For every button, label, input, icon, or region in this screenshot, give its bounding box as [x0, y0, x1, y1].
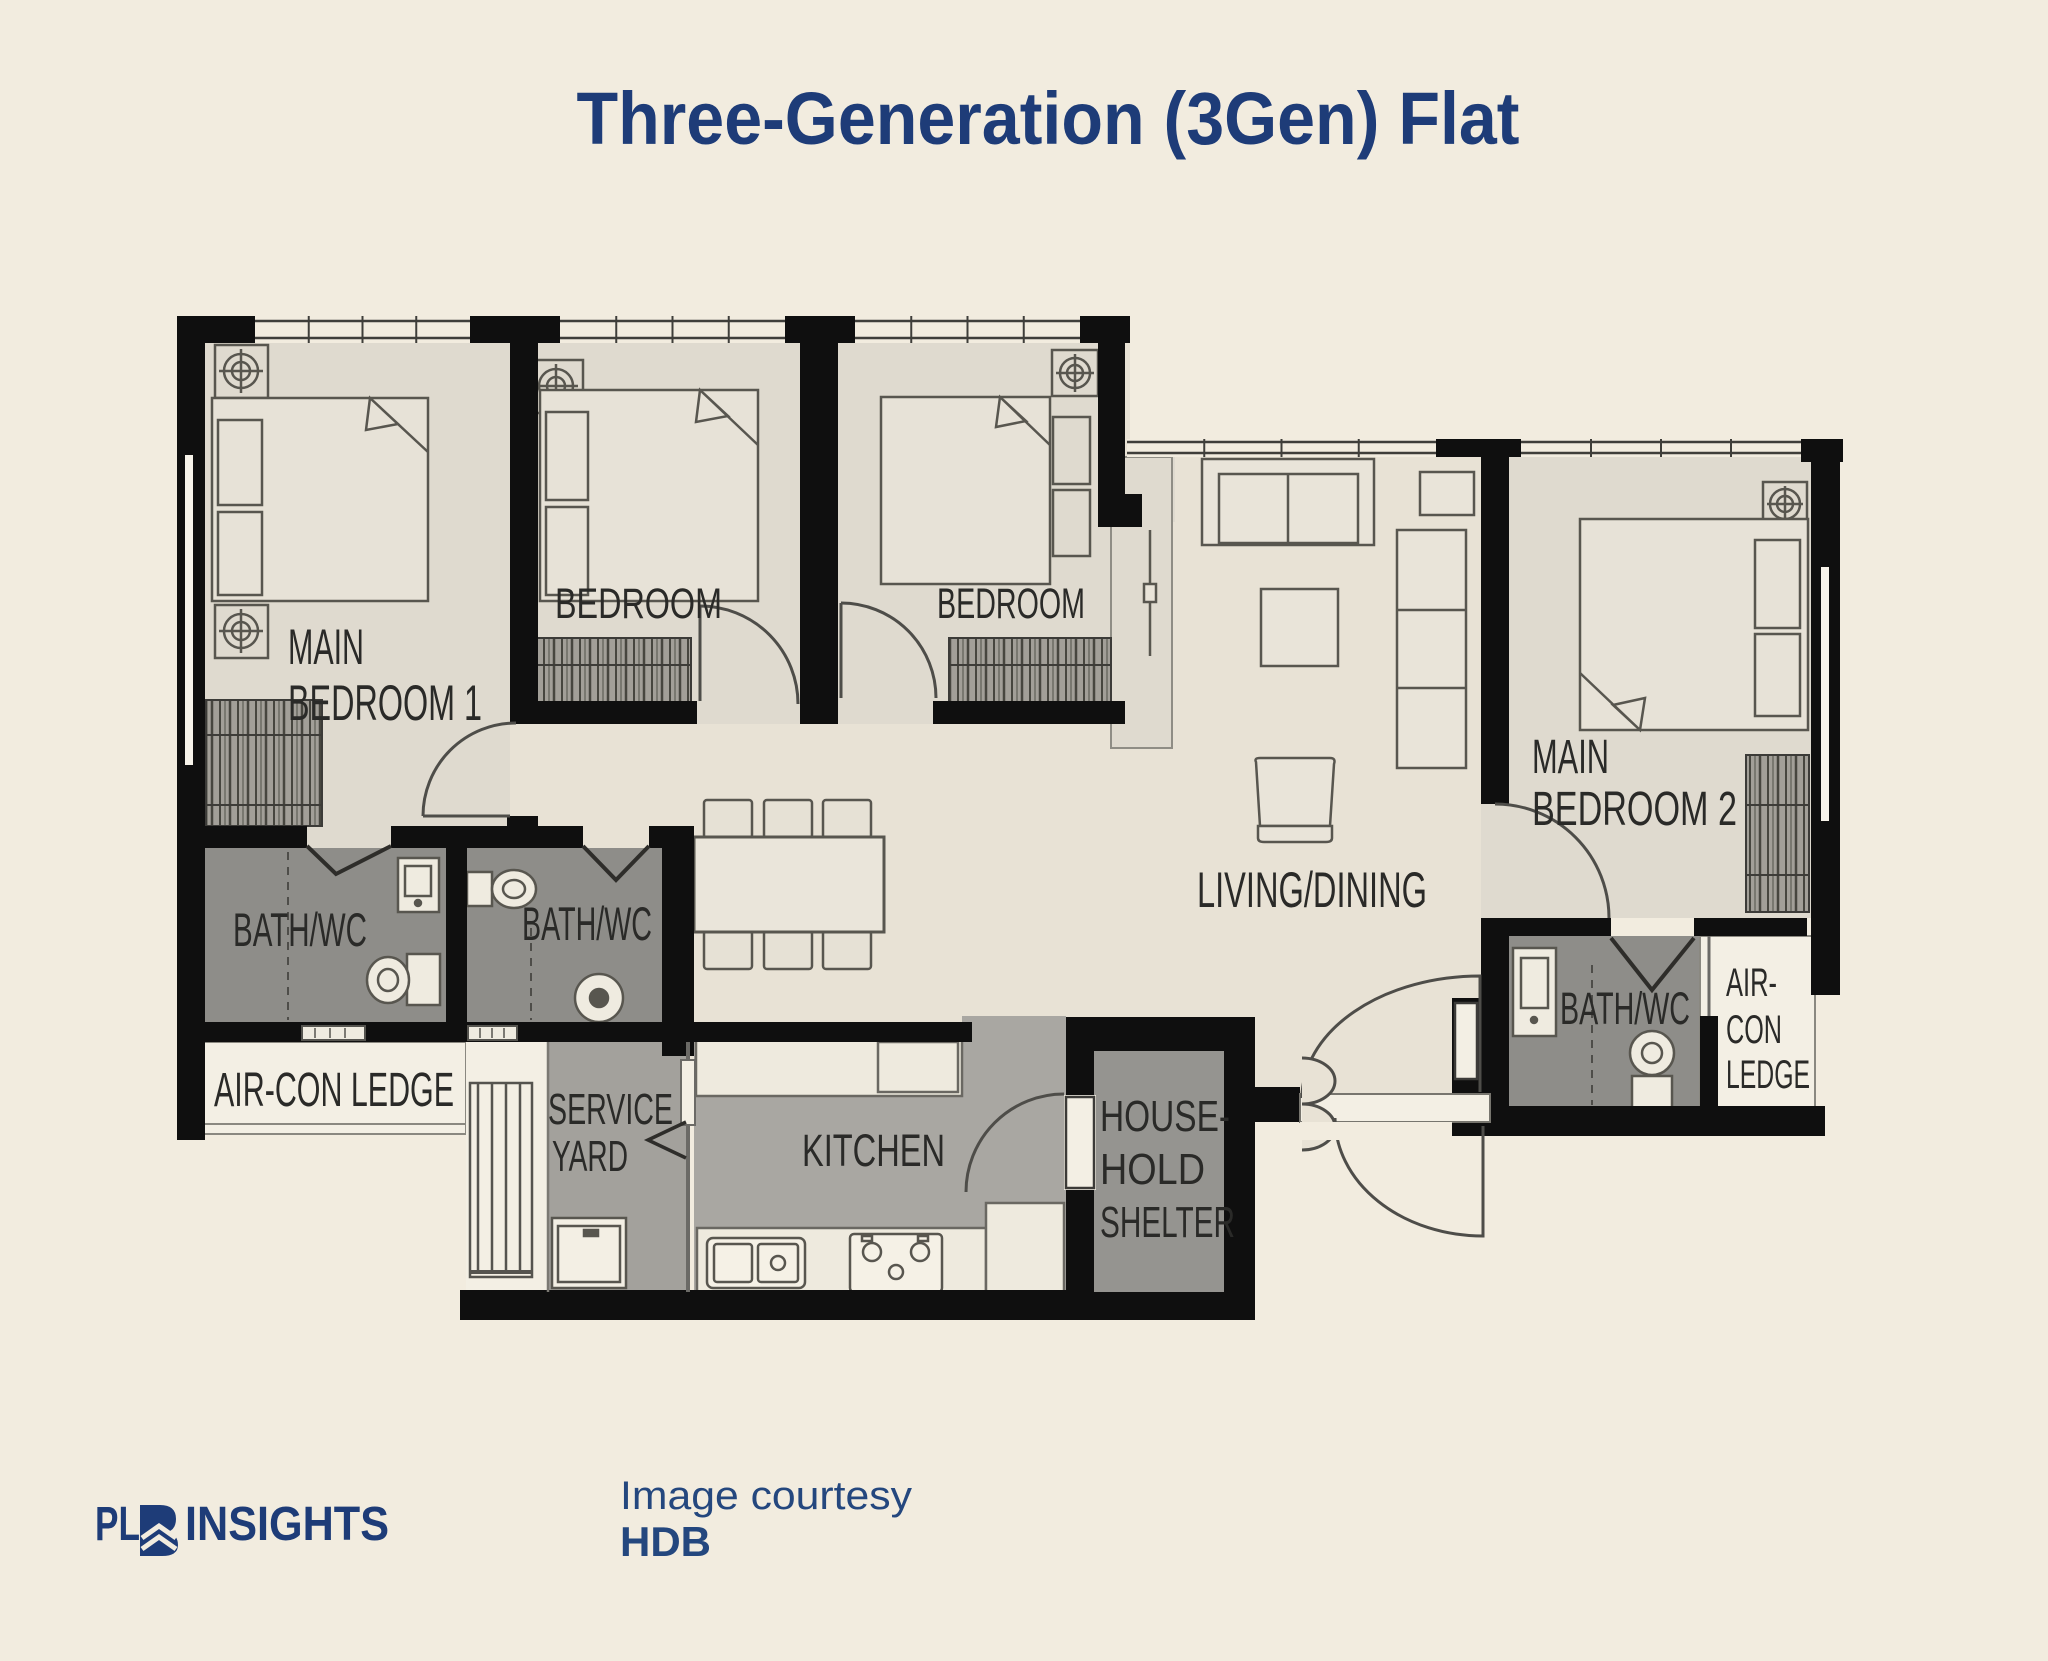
svg-text:BEDROOM 2: BEDROOM 2	[1532, 783, 1737, 836]
svg-text:SERVICE: SERVICE	[548, 1085, 673, 1134]
svg-text:PL: PL	[95, 1498, 140, 1551]
svg-text:MAIN: MAIN	[1532, 731, 1609, 784]
svg-text:HOUSE-: HOUSE-	[1100, 1092, 1230, 1141]
svg-text:BATH/WC: BATH/WC	[522, 897, 652, 950]
svg-text:MAIN: MAIN	[288, 619, 364, 675]
svg-text:CON: CON	[1726, 1008, 1782, 1052]
svg-text:BEDROOM 1: BEDROOM 1	[288, 675, 482, 731]
svg-text:BEDROOM: BEDROOM	[937, 580, 1085, 628]
svg-text:LIVING/DINING: LIVING/DINING	[1197, 862, 1427, 918]
svg-text:AIR-: AIR-	[1726, 961, 1777, 1005]
svg-text:YARD: YARD	[552, 1132, 628, 1181]
svg-text:BEDROOM: BEDROOM	[555, 580, 722, 628]
svg-text:Image courtesy: Image courtesy	[620, 1474, 912, 1518]
svg-text:KITCHEN: KITCHEN	[802, 1125, 945, 1176]
svg-text:BATH/WC: BATH/WC	[233, 903, 367, 956]
svg-text:AIR-CON LEDGE: AIR-CON LEDGE	[214, 1064, 454, 1117]
svg-text:HOLD: HOLD	[1100, 1145, 1205, 1194]
svg-text:LEDGE: LEDGE	[1726, 1053, 1810, 1097]
svg-text:HDB: HDB	[620, 1518, 711, 1565]
svg-text:Three-Generation (3Gen) Flat: Three-Generation (3Gen) Flat	[577, 77, 1520, 160]
svg-text:INSIGHTS: INSIGHTS	[185, 1498, 389, 1551]
svg-text:BATH/WC: BATH/WC	[1560, 983, 1690, 1034]
svg-text:SHELTER: SHELTER	[1100, 1198, 1235, 1247]
